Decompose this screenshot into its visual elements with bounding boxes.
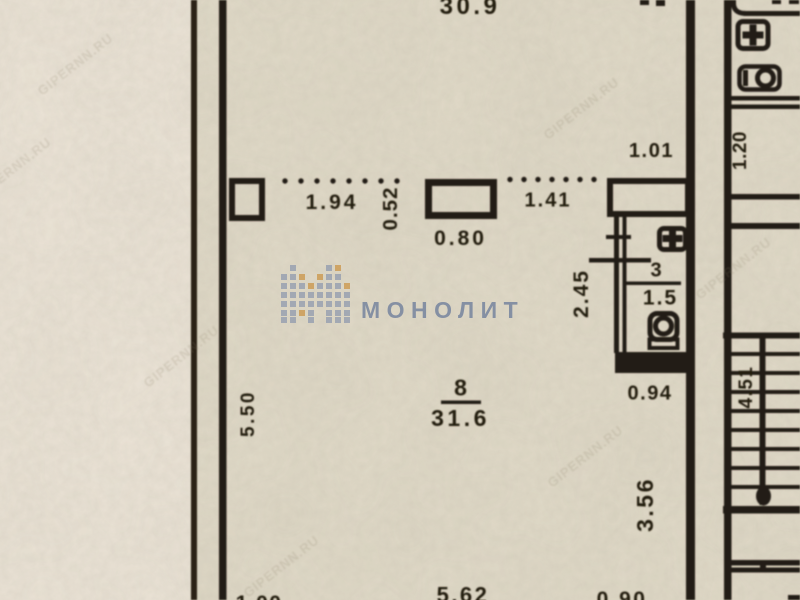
svg-text:2.45: 2.45 xyxy=(570,269,593,318)
svg-text:МОНОЛИТ: МОНОЛИТ xyxy=(361,297,524,323)
svg-text:8: 8 xyxy=(454,375,467,401)
svg-text:30.9: 30.9 xyxy=(440,0,501,20)
svg-text:1.94: 1.94 xyxy=(306,191,359,214)
svg-text:1.41: 1.41 xyxy=(525,190,572,212)
svg-text:4.51: 4.51 xyxy=(736,366,757,409)
svg-text:5.50: 5.50 xyxy=(238,390,259,437)
svg-text:1.01: 1.01 xyxy=(629,140,674,162)
svg-text:0.80: 0.80 xyxy=(434,227,487,250)
svg-text:3.56: 3.56 xyxy=(632,477,658,532)
svg-text:0.52: 0.52 xyxy=(379,187,402,231)
svg-text:1.5: 1.5 xyxy=(643,287,678,310)
svg-text:3: 3 xyxy=(650,260,661,282)
svg-text:0.90: 0.90 xyxy=(597,588,648,600)
svg-text:0.94: 0.94 xyxy=(628,383,673,405)
svg-text:1.20: 1.20 xyxy=(730,131,751,170)
svg-text:31.6: 31.6 xyxy=(431,405,490,431)
svg-text:5.62: 5.62 xyxy=(437,583,490,600)
